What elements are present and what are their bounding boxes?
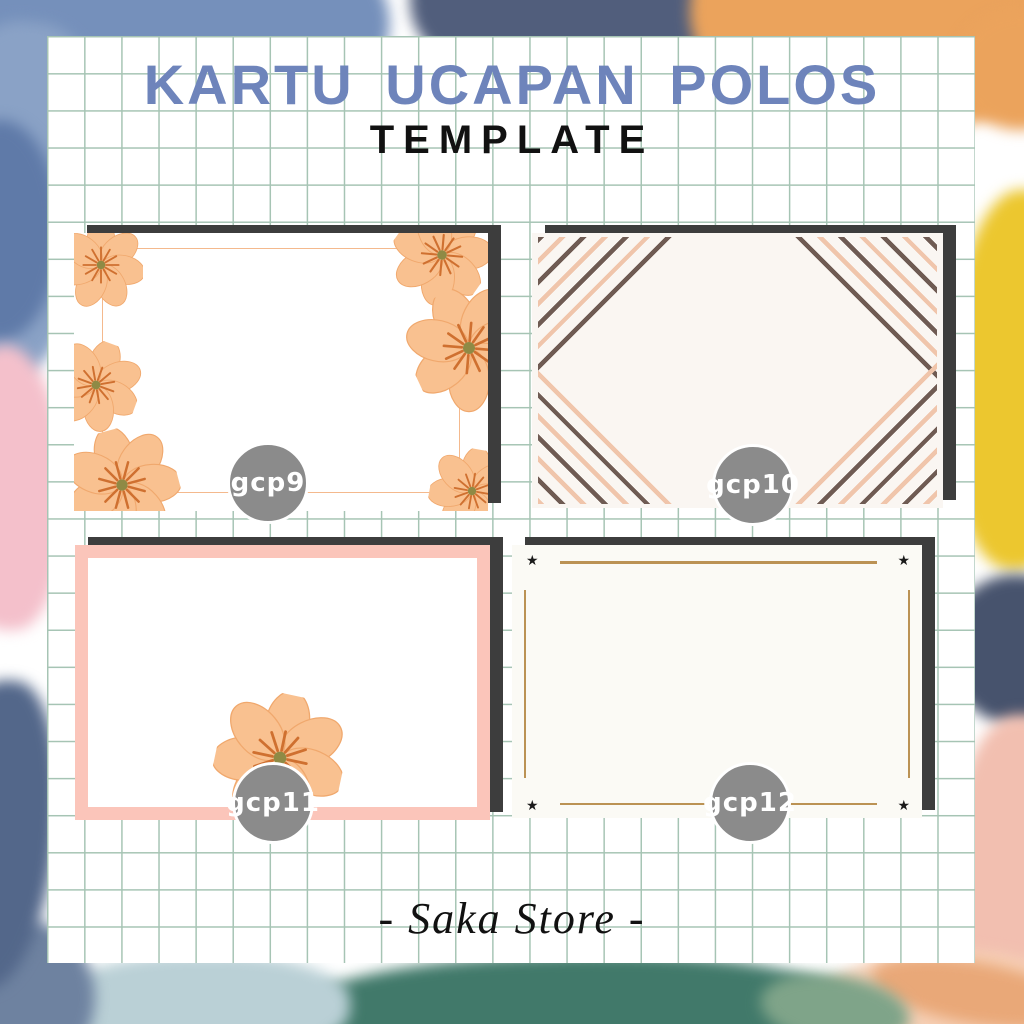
corner-stripes [792,359,937,504]
corner-stripes [538,237,683,382]
corner-stripes [538,359,683,504]
star-icon: ★ [526,798,539,812]
flower-icon [74,233,143,307]
star-icon: ★ [897,553,910,567]
badge-gcp11: gcp11 [232,762,314,844]
badge-label: gcp11 [226,788,320,818]
page-subtitle: TEMPLATE [0,118,1024,163]
gold-line-left [524,590,526,778]
star-icon: ★ [897,798,910,812]
badge-gcp12: gcp12 [709,762,791,844]
badge-gcp9: gcp9 [227,442,309,524]
product-image: KARTU UCAPAN POLOS TEMPLATE [0,0,1024,1024]
star-icon: ★ [526,553,539,567]
page-title: KARTU UCAPAN POLOS [0,52,1024,117]
store-signature: - Saka Store - [0,893,1024,944]
gold-line-right [908,590,910,778]
gold-line-top [560,561,877,564]
badge-label: gcp9 [231,468,306,498]
badge-label: gcp10 [706,470,800,500]
badge-gcp10: gcp10 [712,444,794,526]
badge-label: gcp12 [703,788,797,818]
watercolor-blob-bottom-lightblue [50,955,350,1024]
corner-stripes [792,237,937,382]
